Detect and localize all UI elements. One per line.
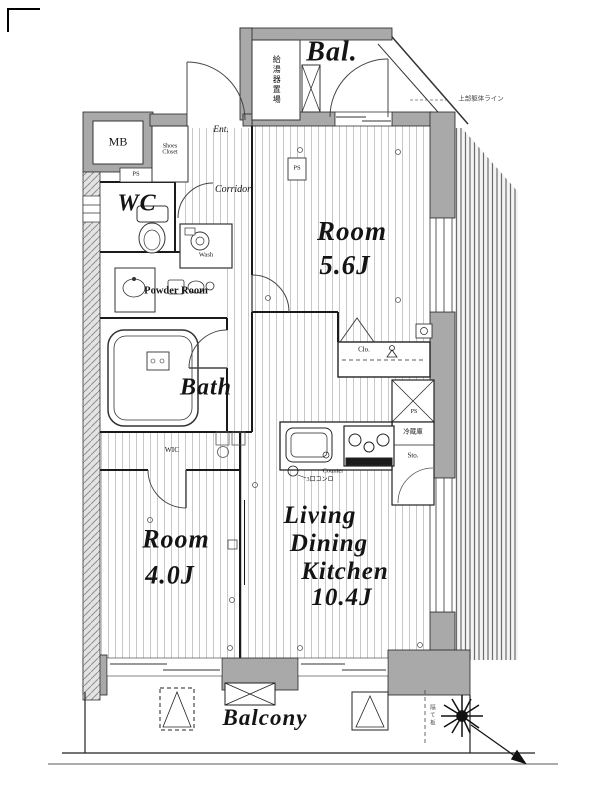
label-powder-room: Powder Room [144,285,208,296]
label-meter-box: MB [109,136,128,149]
label-room2-size: 4.0J [145,561,195,588]
label-ps-kitchen: PS [411,409,418,415]
floor-plan: Bal. 給湯器置場 上部躯体ライン MB PS PS Shoes Closet… [0,0,600,800]
label-room1-name: Room [317,217,387,245]
label-upper-line-note: 上部躯体ライン [458,97,504,104]
label-stove-note: 3口コンロ [306,477,333,483]
label-room1-size: 5.6J [319,251,370,279]
label-partition-note: 隔て板 [428,705,434,728]
label-ps-top: PS [293,166,300,173]
label-closet: Clo. [358,346,370,353]
washing-machine-icon [180,224,232,268]
label-balcony-bottom: Balcony [223,706,308,730]
label-wash: Wash [199,253,213,260]
evacuation-ladder-icon [352,692,388,730]
label-shoes-closet-line2: Closet [162,150,177,156]
label-fridge: 冷蔵庫 [403,430,423,437]
balcony-step-icon [225,683,275,705]
evacuation-hatch-icon [160,688,194,730]
label-ldk-size: 10.4J [311,585,372,611]
label-counter: Counter [323,469,344,476]
label-storage: Sto. [407,452,418,459]
label-wc: WC [117,191,156,216]
label-bath: Bath [180,375,232,400]
label-wic: WIC [165,446,180,454]
label-ldk-living: Living [284,503,357,529]
label-ps-entrance: PS [132,172,139,179]
label-entrance: Ent. [213,126,229,136]
label-water-heater: 給湯器置場 [272,55,280,105]
label-ldk-dining: Dining [290,531,368,557]
label-ldk-kitchen: Kitchen [301,559,389,585]
page-corner-mark [8,9,40,32]
left-wall-hatch [83,172,100,700]
floor-plan-drawing [0,0,600,800]
label-room2-name: Room [142,525,210,552]
label-balcony-top: Bal. [306,37,357,66]
label-corridor: Corridor [215,185,251,196]
label-shoes-closet: Shoes Closet [162,144,177,157]
